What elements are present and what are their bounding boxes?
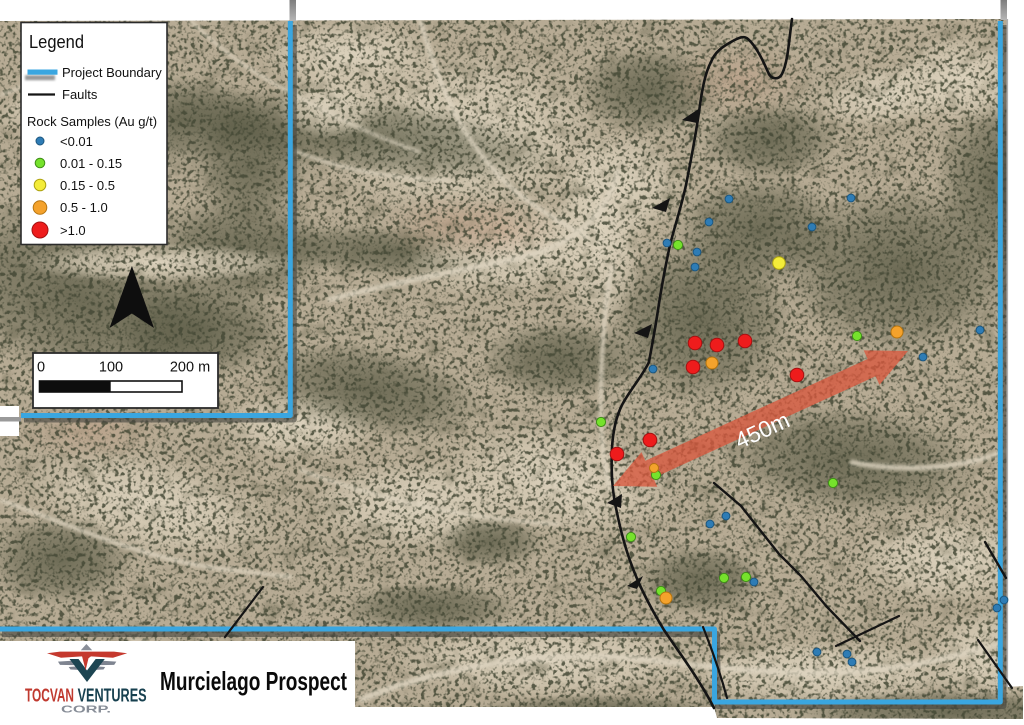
- svg-text:Project Boundary: Project Boundary: [62, 65, 162, 80]
- svg-text:200 m: 200 m: [170, 360, 210, 376]
- svg-text:0.5 - 1.0: 0.5 - 1.0: [60, 200, 108, 215]
- svg-text:VENTURES: VENTURES: [78, 686, 147, 706]
- svg-text:Legend: Legend: [29, 31, 84, 52]
- svg-text:Murcielago Prospect: Murcielago Prospect: [160, 666, 347, 696]
- svg-text:0.15 - 0.5: 0.15 - 0.5: [60, 178, 115, 193]
- svg-text:0: 0: [37, 360, 45, 376]
- svg-text:Faults: Faults: [62, 87, 98, 102]
- svg-text:0.01 - 0.15: 0.01 - 0.15: [60, 156, 122, 171]
- svg-text:>1.0: >1.0: [60, 223, 86, 238]
- svg-text:CORP.: CORP.: [61, 705, 111, 716]
- svg-text:<0.01: <0.01: [60, 134, 93, 149]
- svg-text:Rock Samples (Au g/t): Rock Samples (Au g/t): [27, 114, 157, 129]
- svg-text:TOCVAN: TOCVAN: [25, 686, 74, 706]
- svg-text:100: 100: [99, 360, 123, 376]
